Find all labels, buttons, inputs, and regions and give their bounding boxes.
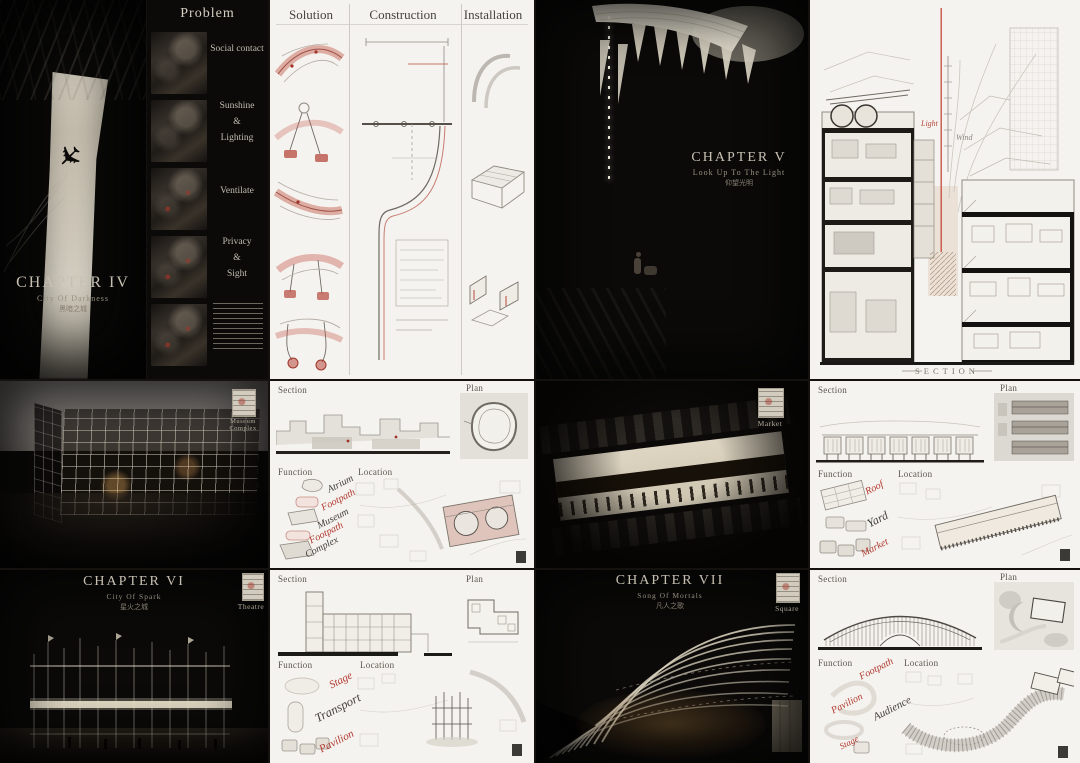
- problem-item-privacy-l1: Privacy: [209, 234, 265, 250]
- square-stamp-icon: [776, 573, 800, 603]
- square-panel: Section Plan Function: [810, 570, 1080, 763]
- section-caption: SECTION: [915, 366, 979, 376]
- wind-annotation: Wind: [956, 133, 973, 142]
- square-location-drawing: [898, 666, 1074, 760]
- vignette: [536, 0, 808, 379]
- problem-title: Problem: [147, 6, 268, 22]
- module-photo-2: [151, 100, 207, 162]
- chapter5-subtitle-cn: 仰望光明: [676, 178, 802, 188]
- chapter7-photo: CHAPTER VII Song Of Mortals 凡人之歌 Square: [536, 570, 808, 763]
- theatre-location-drawing: [352, 668, 530, 760]
- museum-photo: Museum Complex: [0, 381, 268, 568]
- chapter6-subtitle: City Of Spark: [58, 592, 210, 601]
- theatre-plan-label: Plan: [466, 574, 483, 584]
- problem-paragraph: [213, 303, 263, 351]
- solution-sketch-5: [272, 308, 346, 374]
- chapter4-subtitle-cn: 黑暗之城: [4, 304, 142, 314]
- solution-sketch-3: [272, 172, 346, 236]
- problem-item-sunshine-l2: &: [209, 114, 265, 130]
- solution-sketch-1: [272, 30, 346, 94]
- museum-plan-label: Plan: [466, 383, 483, 393]
- chapter6-title: CHAPTER VI: [58, 574, 210, 590]
- installation-sketch-2: [464, 134, 530, 222]
- chapter6-subtitle-cn: 星火之城: [58, 602, 210, 612]
- problem-item-sunshine-l1: Sunshine: [209, 98, 265, 114]
- museum-stamp-l1: Museum: [222, 418, 264, 425]
- chapter7-title: CHAPTER VII: [600, 573, 740, 589]
- vignette: [0, 381, 268, 568]
- solution-sketch-2: [272, 98, 346, 168]
- chapter5-titleblock: CHAPTER V Look Up To The Light 仰望光明: [676, 150, 802, 188]
- market-section-label: Section: [818, 385, 847, 395]
- chapter5-title: CHAPTER V: [676, 150, 802, 166]
- chapter7-subtitle: Song Of Mortals: [600, 591, 740, 600]
- museum-section-drawing: [276, 397, 452, 461]
- problem-item-sunshine-l3: Lighting: [209, 130, 265, 146]
- section-drawing-panel: Light Wind Light SECTION: [810, 0, 1080, 379]
- problem-item-privacy-l3: Sight: [209, 266, 265, 282]
- theatre-function-label: Function: [278, 660, 312, 670]
- market-photo: Market: [536, 381, 808, 568]
- installation-sketch-3: [464, 246, 530, 338]
- chapter4-photo: ✈ CHAPTER IV City Of Darkness 黑暗之城: [0, 0, 146, 379]
- theatre-plan-drawing: [460, 586, 528, 650]
- square-section-drawing: [816, 584, 984, 654]
- museum-stamp-label: Museum Complex: [222, 418, 264, 432]
- chapter4-subtitle: City Of Darkness: [4, 294, 142, 303]
- divider-2: [461, 4, 462, 375]
- heading-rule: [276, 24, 528, 25]
- museum-panel: Section Plan Function Atrium Footpath Mu…: [270, 381, 534, 568]
- theatre-section-label: Section: [278, 574, 307, 584]
- studies-panel: Solution Construction Installation: [270, 0, 534, 379]
- theatre-stamp-label: Theatre: [230, 602, 272, 611]
- module-photo-1: [151, 32, 207, 94]
- market-plan-label: Plan: [1000, 383, 1017, 393]
- market-panel: Section Plan: [810, 381, 1080, 568]
- installation-sketch-1: [464, 36, 530, 124]
- square-stamp-label: Square: [766, 604, 808, 613]
- portfolio-board: ✈ CHAPTER IV City Of Darkness 黑暗之城 Probl…: [0, 0, 1080, 763]
- square-section-label: Section: [818, 574, 847, 584]
- museum-stamp-icon: [232, 389, 256, 417]
- light-annotation: Light: [920, 119, 939, 128]
- problem-panel: Problem Social contact Sunshine & Lighti…: [147, 0, 268, 379]
- installation-heading: Installation: [464, 7, 523, 23]
- problem-item-sunshine: Sunshine & Lighting: [209, 98, 265, 146]
- theatre-stamp-icon: [242, 573, 264, 601]
- square-plan-label: Plan: [1000, 572, 1017, 582]
- module-photo-3: [151, 168, 207, 230]
- square-plan-drawing: [994, 582, 1074, 652]
- chapter7-titleblock: CHAPTER VII Song Of Mortals 凡人之歌: [600, 573, 740, 611]
- module-photo-5: [151, 304, 207, 366]
- solution-heading: Solution: [289, 7, 333, 23]
- tenement-section-drawing: Light Wind Light SECTION: [810, 0, 1080, 379]
- museum-location-drawing: [350, 475, 530, 565]
- problem-item-social: Social contact: [209, 44, 265, 54]
- problem-item-privacy-l2: &: [209, 250, 265, 266]
- problem-item-privacy: Privacy & Sight: [209, 234, 265, 282]
- divider-1: [349, 4, 350, 375]
- market-stamp-icon: [758, 388, 784, 418]
- chapter6-photo: CHAPTER VI City Of Spark 星火之城 Theatre: [0, 570, 268, 763]
- problem-item-ventilate: Ventilate: [209, 186, 265, 196]
- theatre-panel: Section Plan Function: [270, 570, 534, 763]
- solution-sketch-4: [272, 240, 346, 304]
- market-plan-drawing: [994, 393, 1074, 463]
- chapter4-titleblock: CHAPTER IV City Of Darkness 黑暗之城: [4, 274, 142, 314]
- vignette: [0, 0, 146, 379]
- museum-stamp-l2: Complex: [222, 425, 264, 432]
- construction-drawing: [352, 28, 458, 376]
- chapter4-title: CHAPTER IV: [4, 274, 142, 292]
- market-stamp-label: Market: [748, 419, 792, 428]
- chapter5-photo: CHAPTER V Look Up To The Light 仰望光明: [536, 0, 808, 379]
- chapter6-titleblock: CHAPTER VI City Of Spark 星火之城: [58, 574, 210, 612]
- construction-heading: Construction: [369, 7, 436, 23]
- module-photo-4: [151, 236, 207, 298]
- museum-plan-drawing: [460, 393, 528, 461]
- chapter5-subtitle: Look Up To The Light: [676, 168, 802, 177]
- chapter7-subtitle-cn: 凡人之歌: [600, 601, 740, 611]
- market-section-drawing: [816, 397, 986, 463]
- market-location-drawing: [892, 477, 1076, 565]
- museum-section-label: Section: [278, 385, 307, 395]
